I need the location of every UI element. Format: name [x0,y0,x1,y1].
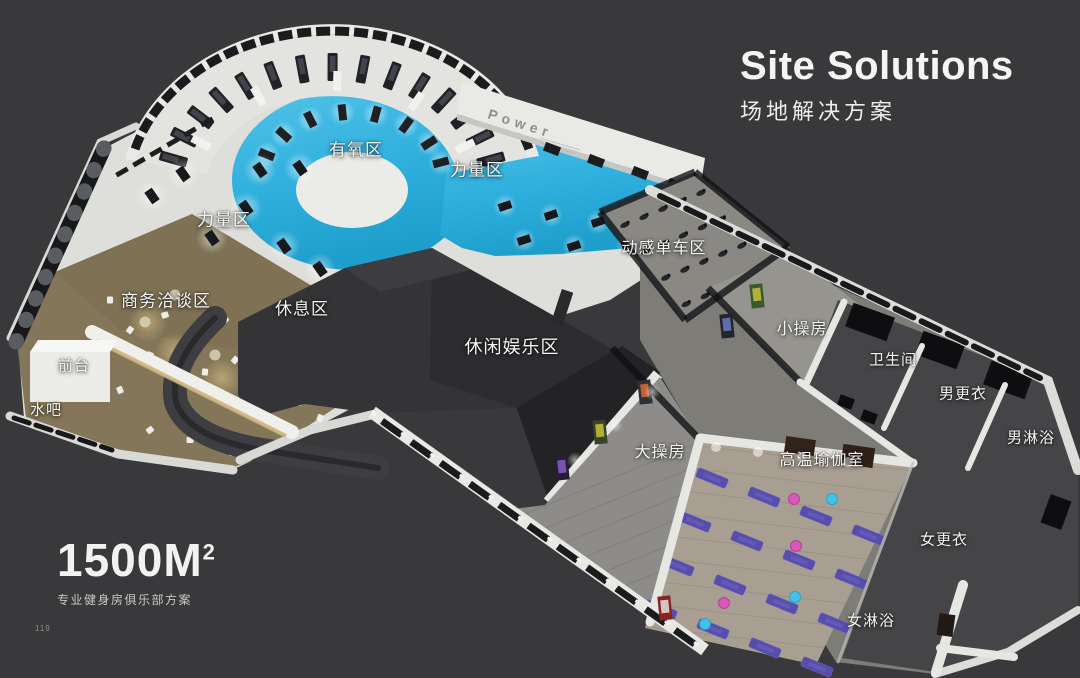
water-bar-counter [30,340,118,352]
page-title: Site Solutions [740,44,1014,88]
page-subtitle: 场地解决方案 [740,94,1014,126]
page-number: 119 [35,624,51,633]
area-info-block: 1500M2 专业健身房俱乐部方案 [57,533,216,608]
title-block: Site Solutions 场地解决方案 [740,44,1014,126]
area-value: 1500M2 [57,533,216,587]
area-exponent: 2 [203,540,216,565]
slide-root: Power [0,0,1080,678]
area-description: 专业健身房俱乐部方案 [57,591,216,608]
